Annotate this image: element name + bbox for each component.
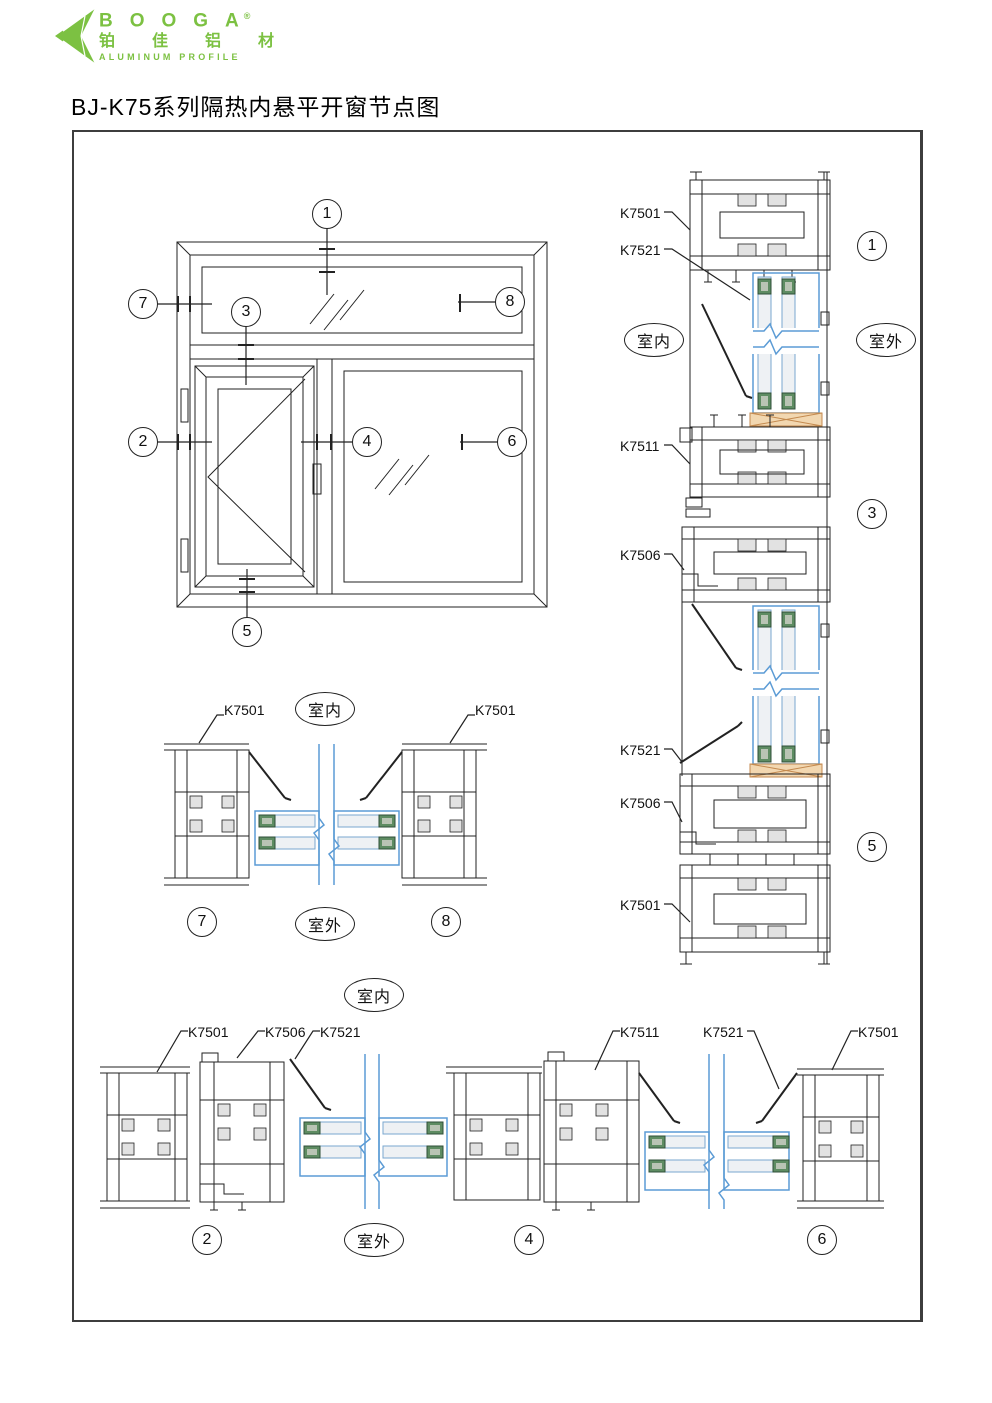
indoor-label: 室内: [624, 323, 684, 357]
vertical-section-leaders: [664, 212, 750, 922]
page-title: BJ-K75系列隔热内悬平开窗节点图: [71, 88, 440, 122]
callout-1: 1: [312, 199, 342, 229]
part-label-K7506: K7506: [620, 795, 660, 811]
part-label-K7511: K7511: [620, 438, 659, 454]
callout-6: 6: [497, 427, 527, 457]
callout-8: 8: [495, 287, 525, 317]
vertical-section-drawing: [664, 172, 830, 964]
bs-glass-unit-2: [645, 1054, 789, 1209]
section-callout-3: 3: [857, 499, 887, 529]
logo-chinese-name: 铂佳铝材: [99, 32, 311, 51]
vs-bead-2: [692, 604, 736, 668]
part-label-K7501: K7501: [620, 897, 660, 913]
bs-mullion-K7506: [200, 1053, 284, 1210]
vs-bead-K7521-top: [702, 304, 746, 396]
outdoor-label: 室外: [856, 323, 916, 357]
vs-bottom-frame-K7501: [680, 854, 830, 964]
hinge-mark: [181, 389, 188, 422]
bs-left-frame-K7501: [100, 1067, 190, 1208]
vs-sash-K7506-upper: [682, 527, 830, 602]
vs-glass-unit-2: [746, 606, 826, 777]
elevation-drawing: [157, 228, 547, 618]
part-label-K7521: K7521: [620, 742, 660, 758]
bs-middle-assembly: [446, 1052, 639, 1210]
logo-brand: BOOGA®: [99, 5, 311, 32]
mid-section-drawing: [164, 715, 487, 885]
hinge-mark: [181, 539, 188, 572]
vs-bead-K7521-bottom: [680, 726, 738, 763]
callout-5: 5: [232, 617, 262, 647]
outdoor-label: 室外: [295, 907, 355, 941]
part-label-K7506: K7506: [620, 547, 660, 563]
section-callout-6: 6: [807, 1225, 837, 1255]
vs-glass-unit-1: [746, 273, 826, 426]
drawing-sheet-border: 1 7 3 8 2 4 6 5 K7501 K7521 K7511 K7506 …: [72, 130, 923, 1322]
indoor-label: 室内: [344, 978, 404, 1012]
ms-glass: [255, 744, 399, 885]
vs-sash-K7506-lower: [680, 774, 830, 854]
logo: BOOGA® 铂佳铝材 ALUMINUM PROFILE: [55, 5, 315, 65]
ms-right-jamb-K7501: [402, 744, 487, 885]
part-label-K7506: K7506: [265, 1024, 305, 1040]
section-callout-7: 7: [187, 907, 217, 937]
part-label-K7521: K7521: [320, 1024, 360, 1040]
part-label-K7501: K7501: [620, 205, 660, 221]
part-label-K7501: K7501: [475, 702, 515, 718]
bs-glass-unit-1: [300, 1054, 447, 1209]
section-callout-5: 5: [857, 832, 887, 862]
bottom-section-leaders: [157, 1031, 858, 1089]
callout-4: 4: [352, 427, 382, 457]
part-label-K7511: K7511: [620, 1024, 659, 1040]
section-callout-1: 1: [857, 231, 887, 261]
glass-hatch-right: [375, 455, 429, 495]
callout-3: 3: [231, 297, 261, 327]
part-label-K7521: K7521: [620, 242, 660, 258]
logo-registered-mark: ®: [244, 11, 251, 21]
part-label-K7501: K7501: [224, 702, 264, 718]
ms-left-jamb-K7501: [164, 744, 249, 885]
section-callout-8: 8: [431, 907, 461, 937]
vs-top-frame-K7501: [690, 172, 830, 282]
part-label-K7521: K7521: [703, 1024, 743, 1040]
callout-2: 2: [128, 427, 158, 457]
section-callout-2: 2: [192, 1225, 222, 1255]
section-callout-4: 4: [514, 1225, 544, 1255]
part-label-K7501: K7501: [858, 1024, 898, 1040]
vs-transom-K7511: [680, 415, 830, 517]
logo-english-tagline: ALUMINUM PROFILE: [99, 51, 311, 63]
bottom-section-drawing: [100, 1031, 884, 1210]
outdoor-label: 室外: [344, 1223, 404, 1257]
callout-7: 7: [128, 289, 158, 319]
casement-open-symbol: [208, 379, 305, 572]
indoor-label: 室内: [295, 692, 355, 726]
glass-hatch-top: [310, 290, 364, 330]
part-label-K7501: K7501: [188, 1024, 228, 1040]
elevation-leaders: [157, 228, 498, 618]
bs-right-frame-K7501: [797, 1069, 884, 1208]
logo-arrow-icon: [55, 7, 97, 65]
